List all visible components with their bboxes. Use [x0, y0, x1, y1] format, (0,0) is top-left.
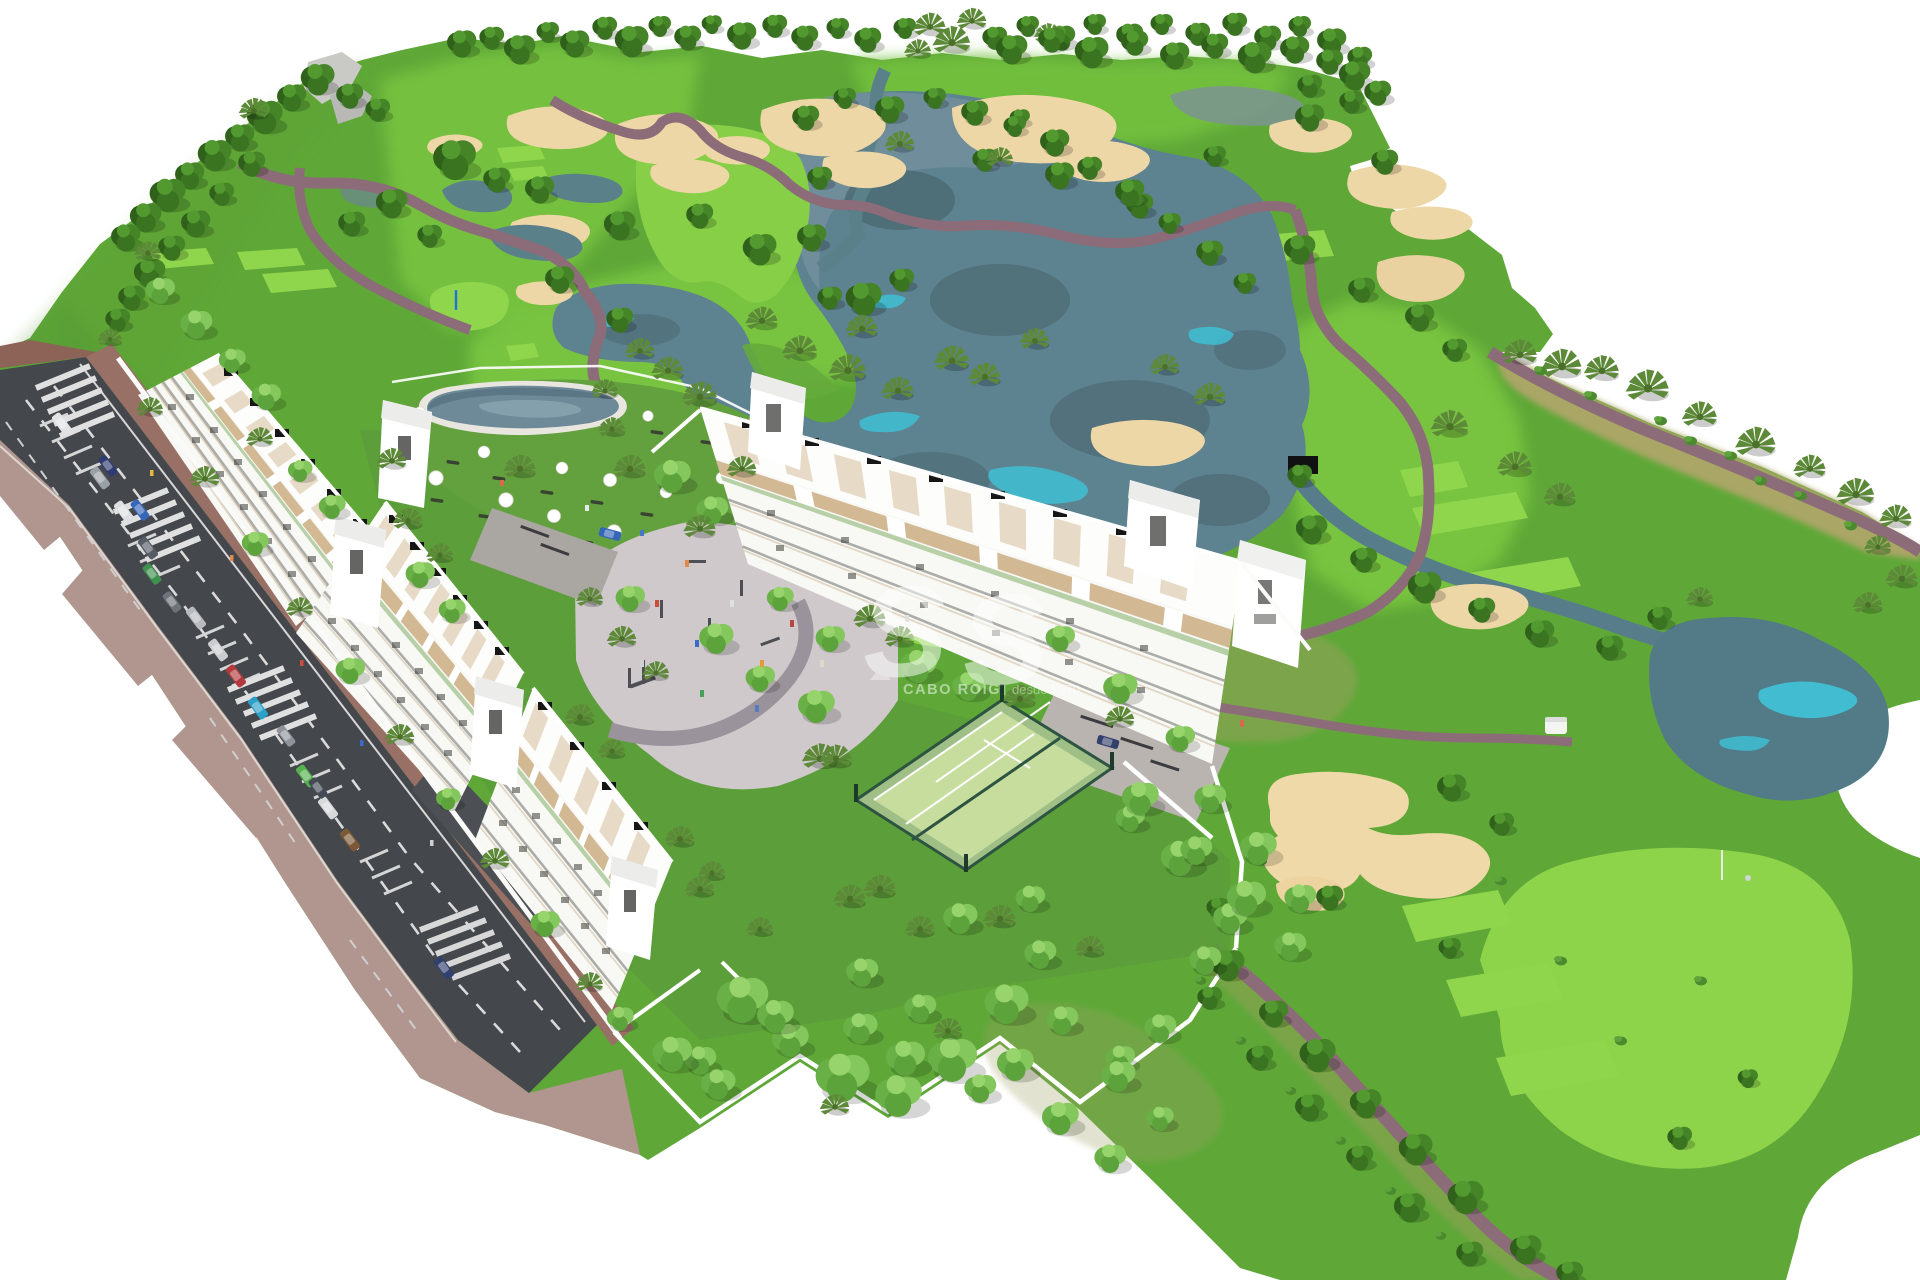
svg-text:CABO ROIG: CABO ROIG — [903, 682, 1001, 698]
svg-text:desde 1970: desde 1970 — [1012, 682, 1080, 697]
